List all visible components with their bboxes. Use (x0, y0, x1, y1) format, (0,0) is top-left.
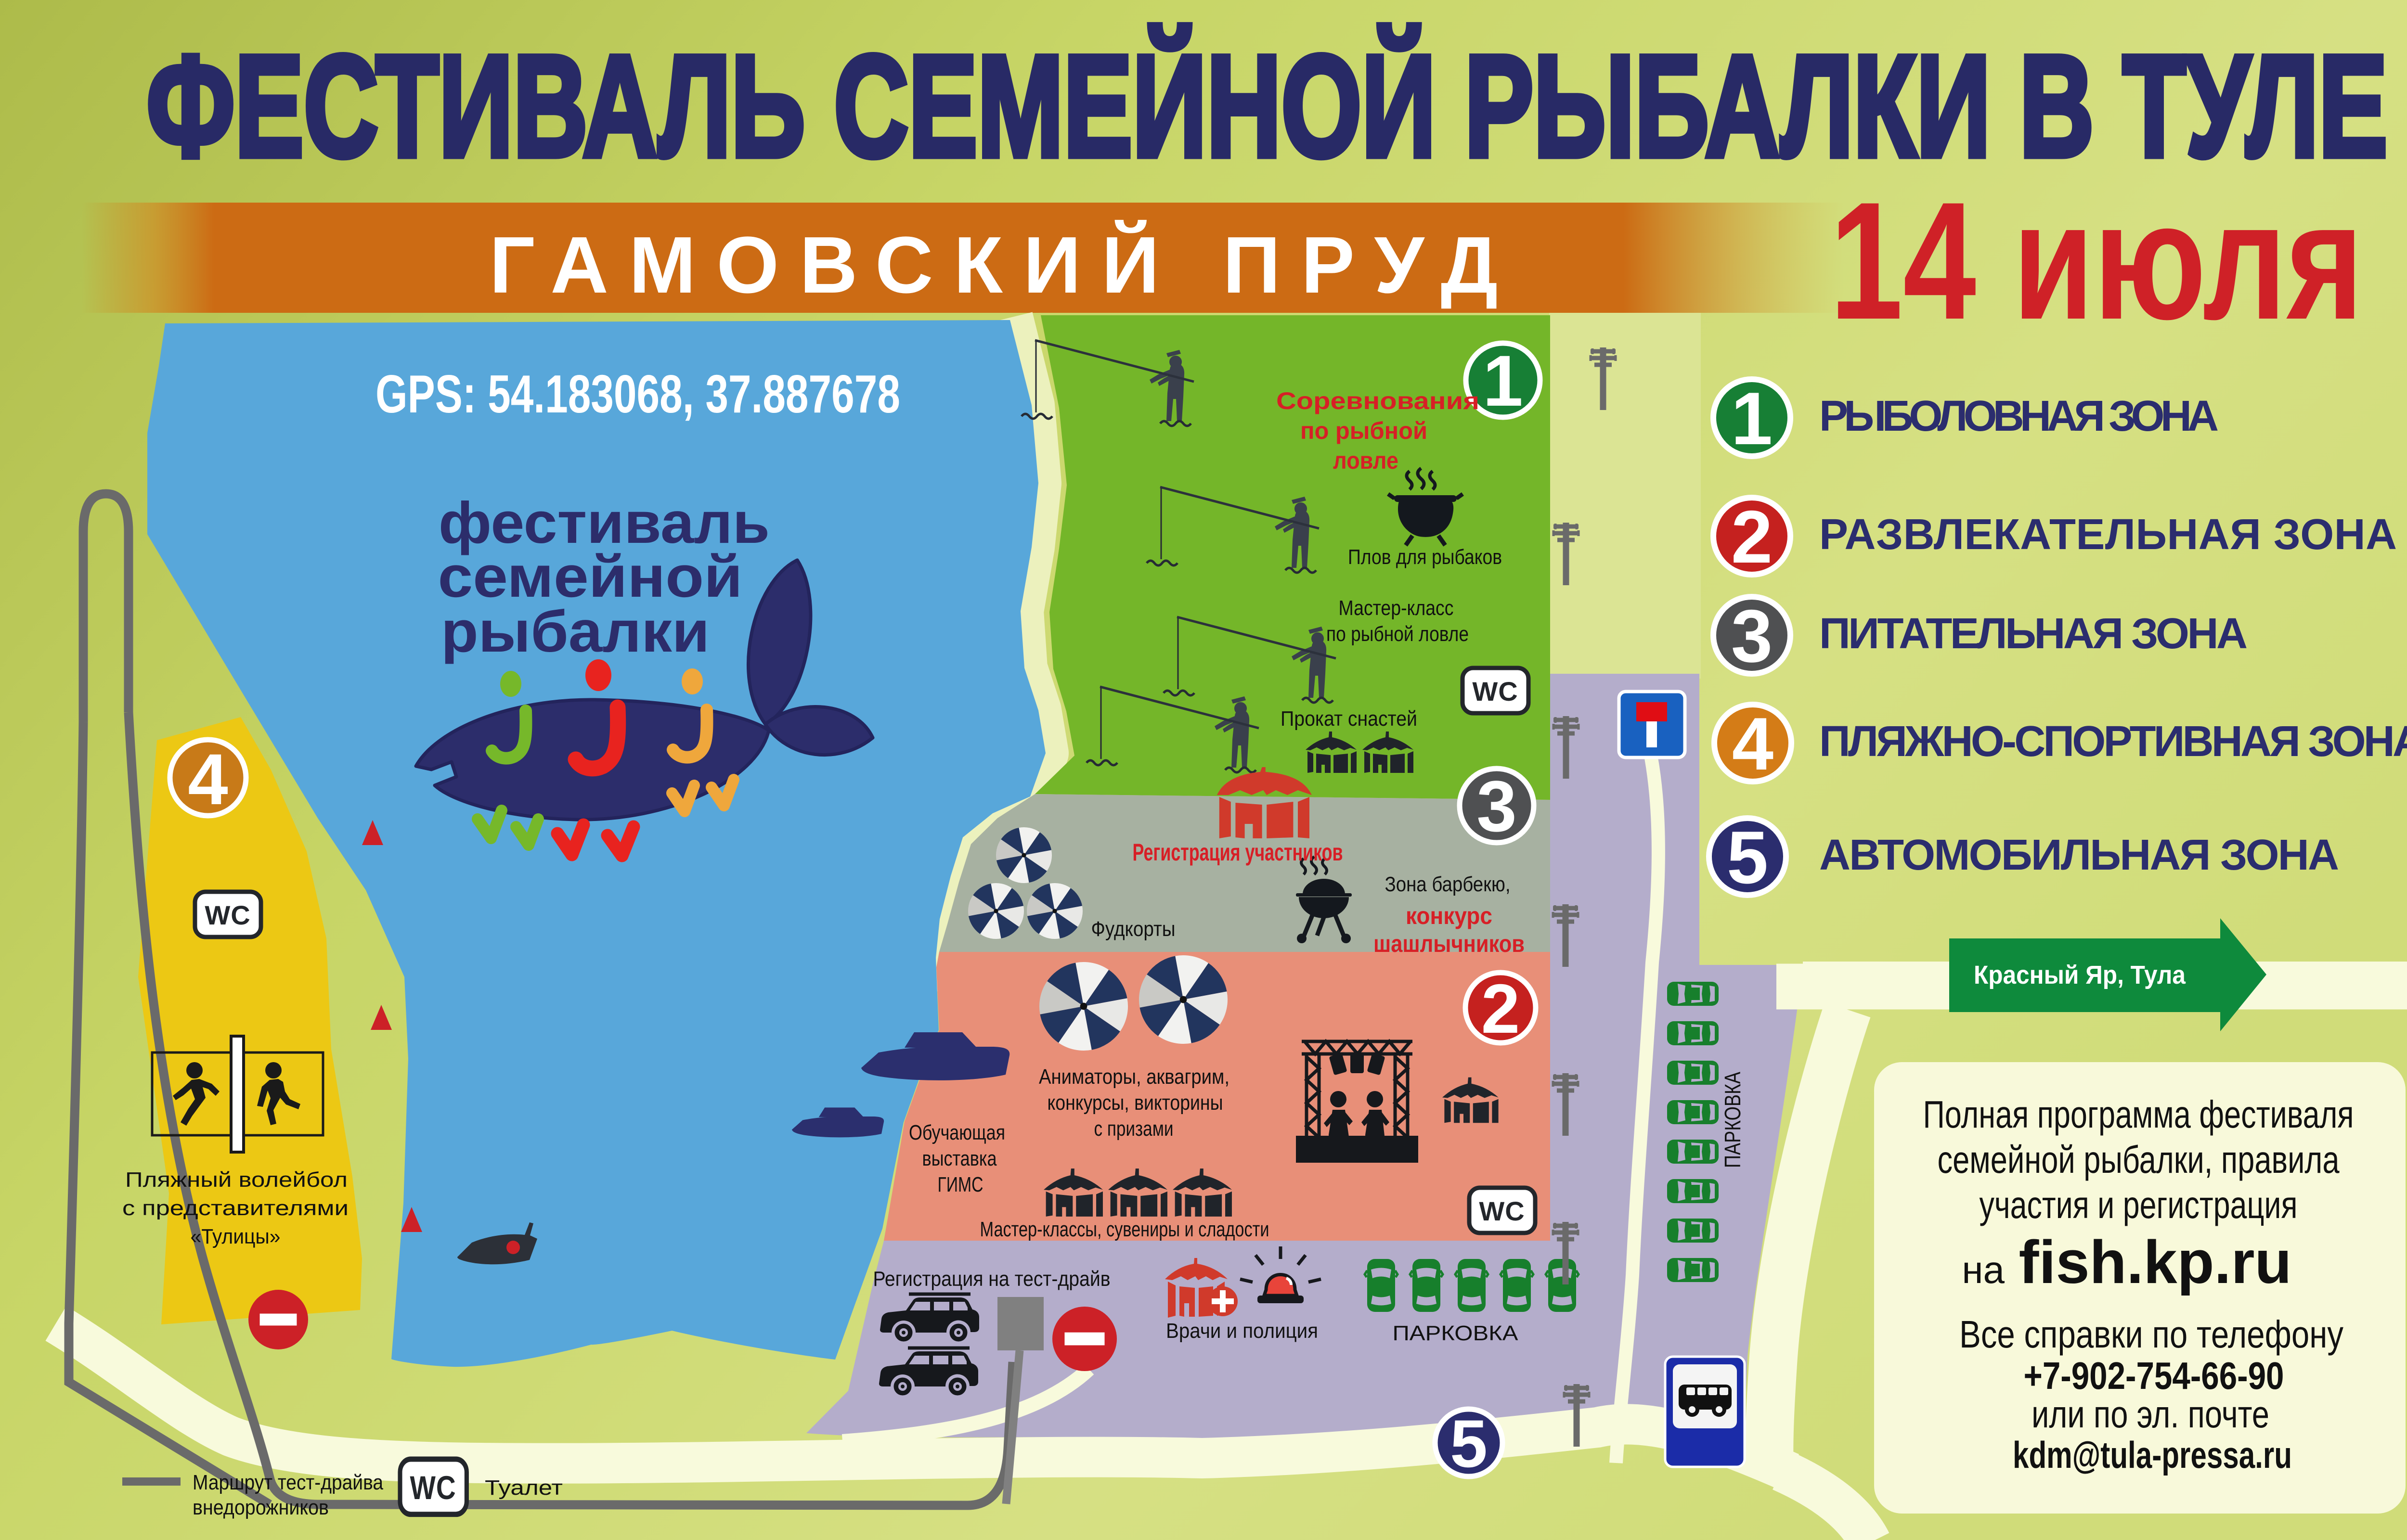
svg-text:1: 1 (1483, 340, 1523, 421)
svg-text:ПАРКОВКА: ПАРКОВКА (1720, 1072, 1745, 1168)
svg-text:Все справки по телефону: Все справки по телефону (1959, 1313, 2343, 1356)
svg-text:14 июля: 14 июля (1830, 167, 2363, 354)
svg-text:ПЛЯЖНО-СПОРТИВНАЯ ЗОНА: ПЛЯЖНО-СПОРТИВНАЯ ЗОНА (1819, 718, 2407, 766)
svg-text:ПАРКОВКА: ПАРКОВКА (1393, 1322, 1519, 1345)
svg-text:семейной рыбалки, правила: семейной рыбалки, правила (1938, 1138, 2340, 1181)
svg-text:Плов для рыбаков: Плов для рыбаков (1348, 545, 1502, 569)
svg-text:GPS: 54.183068, 37.887678: GPS: 54.183068, 37.887678 (375, 364, 900, 424)
svg-text:Соревнования: Соревнования (1276, 387, 1479, 414)
svg-text:5: 5 (1727, 816, 1768, 899)
svg-text:Фудкорты: Фудкорты (1091, 917, 1176, 941)
svg-text:с представителями: с представителями (122, 1196, 349, 1220)
svg-text:Аниматоры, аквагрим,: Аниматоры, аквагрим, (1039, 1065, 1229, 1089)
svg-text:Красный Яр, Тула: Красный Яр, Тула (1974, 961, 2186, 989)
svg-text:ловле: ловле (1333, 447, 1398, 474)
svg-text:Полная программа фестиваля: Полная программа фестиваля (1923, 1093, 2354, 1136)
svg-text:Обучающая: Обучающая (909, 1121, 1005, 1144)
svg-text:1: 1 (1731, 377, 1773, 460)
svg-text:Пляжный волейбол: Пляжный волейбол (125, 1168, 348, 1192)
svg-text:участия и регистрация: участия и регистрация (1980, 1183, 2298, 1226)
svg-text:Маршрут тест-драйва: Маршрут тест-драйва (193, 1471, 383, 1494)
svg-text:«Тулицы»: «Тулицы» (191, 1225, 281, 1248)
svg-text:ФЕСТИВАЛЬ СЕМЕЙНОЙ РЫБАЛКИ В Т: ФЕСТИВАЛЬ СЕМЕЙНОЙ РЫБАЛКИ В ТУЛЕ (147, 25, 2388, 187)
svg-text:АВТОМОБИЛЬНАЯ ЗОНА: АВТОМОБИЛЬНАЯ ЗОНА (1819, 831, 2339, 879)
svg-text:шашлычников: шашлычников (1373, 930, 1525, 957)
svg-text:конкурс: конкурс (1406, 902, 1492, 929)
svg-text:рыбалки: рыбалки (441, 599, 710, 664)
svg-text:2: 2 (1481, 970, 1520, 1048)
svg-text:Зона барбекю,: Зона барбекю, (1385, 873, 1511, 896)
svg-text:выставка: выставка (922, 1147, 997, 1170)
svg-text:Врачи и полиция: Врачи и полиция (1166, 1319, 1318, 1343)
svg-text:Регистрация на тест-драйв: Регистрация на тест-драйв (873, 1267, 1111, 1291)
svg-text:fish.kp.ru: fish.kp.ru (2019, 1228, 2292, 1296)
svg-text:4: 4 (1732, 702, 1773, 785)
svg-text:с призами: с призами (1094, 1117, 1174, 1141)
svg-text:Прокат снастей: Прокат снастей (1281, 707, 1417, 731)
svg-text:Мастер-классы, сувениры и слад: Мастер-классы, сувениры и сладости (980, 1218, 1269, 1241)
svg-text:4: 4 (188, 739, 228, 820)
svg-text:по рыбной ловле: по рыбной ловле (1326, 622, 1469, 646)
svg-text:ГАМОВСКИЙ ПРУД: ГАМОВСКИЙ ПРУД (490, 219, 1498, 310)
svg-text:Регистрация участников: Регистрация участников (1133, 839, 1343, 866)
svg-text:3: 3 (1731, 594, 1773, 678)
svg-text:конкурсы, викторины: конкурсы, викторины (1048, 1091, 1223, 1115)
svg-text:+7-902-754-66-90: +7-902-754-66-90 (2024, 1354, 2284, 1397)
svg-text:ПИТАТЕЛЬНАЯ ЗОНА: ПИТАТЕЛЬНАЯ ЗОНА (1819, 610, 2248, 658)
svg-text:по рыбной: по рыбной (1300, 417, 1427, 444)
svg-text:kdm@tula-pressa.ru: kdm@tula-pressa.ru (2013, 1434, 2292, 1476)
svg-text:2: 2 (1731, 495, 1773, 578)
svg-text:РАЗВЛЕКАТЕЛЬНАЯ ЗОНА: РАЗВЛЕКАТЕЛЬНАЯ ЗОНА (1819, 511, 2397, 559)
svg-text:ГИМС: ГИМС (938, 1173, 984, 1196)
svg-text:5: 5 (1450, 1406, 1488, 1481)
svg-text:Туалет: Туалет (485, 1476, 563, 1500)
svg-text:на: на (1962, 1248, 2005, 1291)
svg-text:Мастер-класс: Мастер-класс (1339, 596, 1454, 620)
svg-text:внедорожников: внедорожников (193, 1496, 329, 1519)
svg-text:3: 3 (1476, 766, 1516, 847)
svg-text:РЫБОЛОВНАЯ ЗОНА: РЫБОЛОВНАЯ ЗОНА (1819, 392, 2219, 440)
svg-text:или по эл. почте: или по эл. почте (2032, 1393, 2269, 1436)
